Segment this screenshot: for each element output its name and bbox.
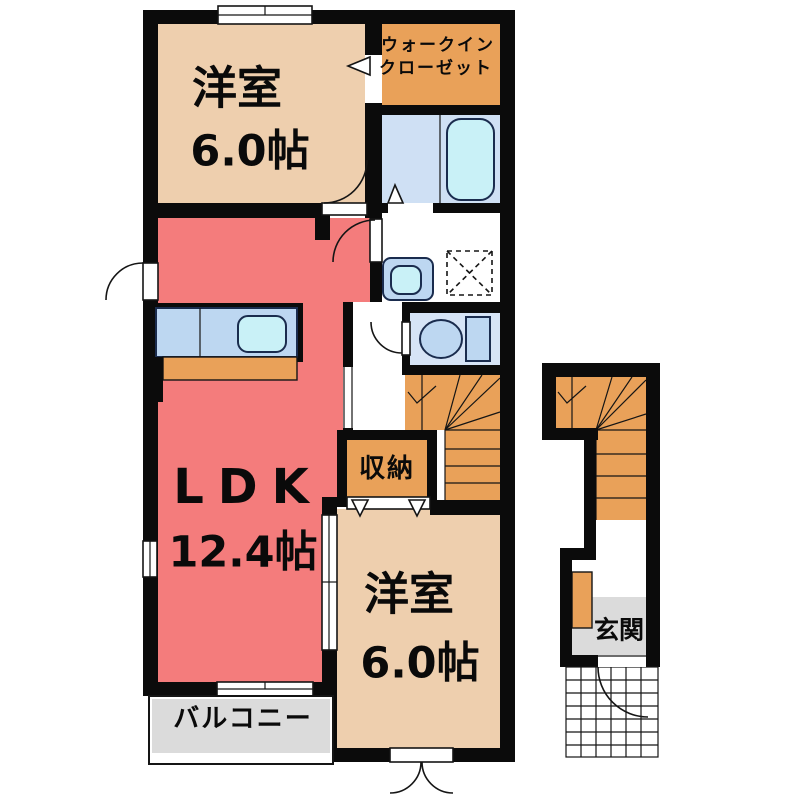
ldk-name: LDK [173, 463, 323, 511]
ldk-size: 12.4帖 [168, 532, 317, 575]
ldk-balcony-window [217, 682, 313, 696]
door-swing-arc [106, 263, 143, 300]
entrance-stairs [556, 377, 646, 520]
storage-label: 収納 [359, 456, 415, 482]
toilet-door [371, 322, 410, 355]
washbasin-icon [383, 258, 433, 300]
toilet-icon [420, 317, 490, 361]
bathtub-icon [447, 119, 494, 200]
shoe-cabinet-icon [572, 572, 592, 628]
entrance-label: 玄関 [594, 618, 644, 643]
ldk-bedroom-sliding-partition [322, 515, 337, 650]
ldk-hallway-opening [343, 367, 353, 428]
floorplan-page: 洋室 6.0帖 ウォークイン クローゼット LDK 12.4帖 収納 洋室 6.… [0, 0, 800, 800]
porch [566, 667, 658, 757]
walk-in-closet-label-line1: ウォークイン [381, 38, 495, 55]
bedroom-bottom-double-door [390, 748, 453, 793]
kitchen-sink-icon [238, 316, 286, 352]
door-swing-arc [390, 762, 421, 793]
bedroom-bottom-floor [337, 509, 500, 748]
bedroom-bottom-name: 洋室 [364, 572, 454, 617]
ldk-west-window [143, 541, 157, 577]
door-swing-arc [371, 322, 402, 353]
bedroom-top-window [218, 6, 312, 24]
balcony-label: バルコニー [173, 706, 312, 732]
door-swing-arc [422, 762, 453, 793]
walk-in-closet-label-line2: クローゼット [379, 61, 493, 78]
bedroom-top-size: 6.0帖 [190, 131, 309, 174]
bedroom-top-name: 洋室 [192, 66, 282, 111]
ldk-west-door [106, 263, 158, 300]
washing-machine-space-icon [447, 251, 492, 295]
bedroom-bottom-size: 6.0帖 [360, 643, 479, 686]
